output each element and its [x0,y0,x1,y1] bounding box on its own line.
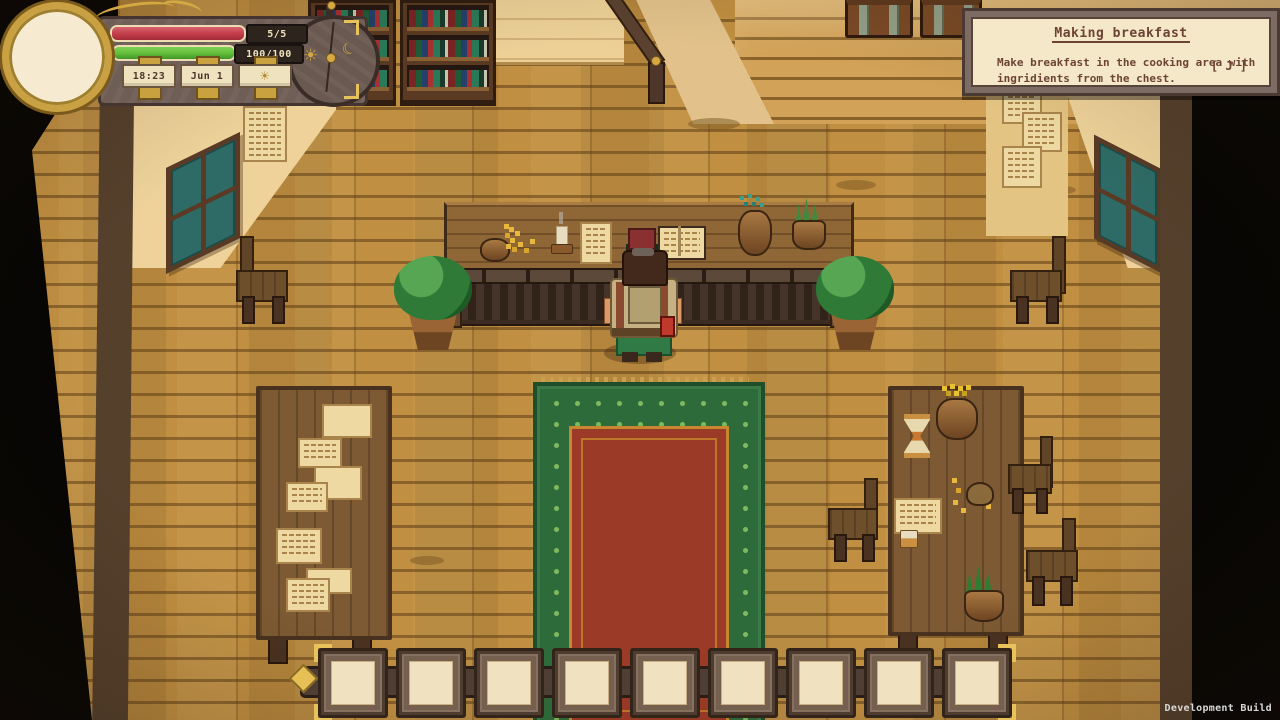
candle-holder [551,244,573,254]
backpack [628,286,662,324]
health-bar-fill [112,27,244,40]
quest-panel: Making breakfast Make breakfast in the c… [962,8,1280,96]
chair-leg [834,534,847,562]
wall-poster [243,106,287,162]
quest-key-hint: [ J ] [1211,59,1247,73]
sun-icon: ☀ [303,46,318,66]
gold-corner-ornament [344,84,359,99]
hotbar-slot-4[interactable] [552,648,622,718]
floor-stain [410,556,444,565]
sunny-icon: ☀ [259,69,270,83]
chair-leg [272,296,285,324]
hotbar-slot-6[interactable] [708,648,778,718]
coin-scatter [952,478,957,483]
hotbar-slot-1[interactable] [318,648,388,718]
hotbar-slot-inner [799,661,843,705]
bookshelf [400,0,496,106]
floor-stain [836,180,876,190]
hotbar-slot-9[interactable] [942,648,1012,718]
hotbar-slot-inner [331,661,375,705]
hotbar-slot-3[interactable] [474,648,544,718]
hotbar-slot-inner [565,661,609,705]
paper-sheet [322,404,372,438]
chair-leg [242,296,255,324]
coin-pile [504,224,509,229]
player-portrait[interactable] [2,2,112,112]
hotbar-slot-inner [721,661,765,705]
hotbar-slot-7[interactable] [786,648,856,718]
gold-corner-ornament [344,20,359,35]
hotbar-slot-2[interactable] [396,648,466,718]
hotbar-slot-5[interactable] [630,648,700,718]
flower-pot [936,398,978,440]
boot [646,352,662,362]
chair-leg [1036,488,1048,514]
small-candle [900,530,918,548]
time-label: 18:23 [122,64,176,88]
chair-leg [1016,296,1029,324]
plant-pot [792,220,826,250]
quest-panel-inner: Making breakfast Make breakfast in the c… [971,17,1271,87]
date-label: Jun 1 [180,64,234,88]
floor-stain [688,118,740,130]
teal-flowers [740,196,744,200]
hotbar-slots [318,648,1012,718]
candle-smoke [559,212,563,224]
hotbar-slot-inner [877,661,921,705]
paper-sheet [286,482,328,512]
bush [394,256,472,320]
chair-leg [1060,576,1073,606]
paper-sheet [286,578,330,612]
hotbar-slot-inner [955,661,999,705]
coin-sack [480,238,510,262]
right-wall-side [1160,82,1196,720]
chair-leg [1032,576,1045,606]
hotbar-slot-inner [487,661,531,705]
paper-sheet [276,528,322,564]
storage-chest[interactable] [845,0,913,38]
time-plaque[interactable]: 18:23 [122,60,176,92]
yellow-flowers [942,386,947,391]
health-value: 5/5 [246,24,308,44]
chair-leg [862,534,875,562]
notice-paper [1002,146,1042,188]
weather-plaque[interactable]: ☀ [238,60,292,92]
hotbar-slot-8[interactable] [864,648,934,718]
canteen [660,316,675,337]
paper-sheet [298,438,342,468]
coin-pouch [966,482,994,506]
hotbar-slot-inner [643,661,687,705]
player-character [600,246,684,368]
offscreen-black [1192,76,1280,720]
hotbar-slot-inner [409,661,453,705]
stair-newel-post [648,62,665,104]
date-plaque[interactable]: Jun 1 [180,60,234,92]
health-bar [110,25,246,42]
hair-highlight [632,248,654,256]
backpack-strap [616,282,624,328]
chair-leg [1046,296,1059,324]
plant-pot [964,590,1004,622]
note-paper [894,498,942,534]
clock-center [326,53,336,63]
newel-knob [651,56,661,66]
clock-crown [327,1,336,10]
bush [816,256,894,320]
flower-vase [738,210,772,256]
chair-leg [1012,488,1024,514]
game-screen: 5/5 100/100 18:23 Jun 1 ☀ ☀ ☾ Making bre… [0,0,1280,720]
quest-title: Making breakfast [973,26,1269,41]
build-label: Development Build [1165,703,1272,714]
boot [622,352,638,362]
upper-landing [492,0,624,65]
